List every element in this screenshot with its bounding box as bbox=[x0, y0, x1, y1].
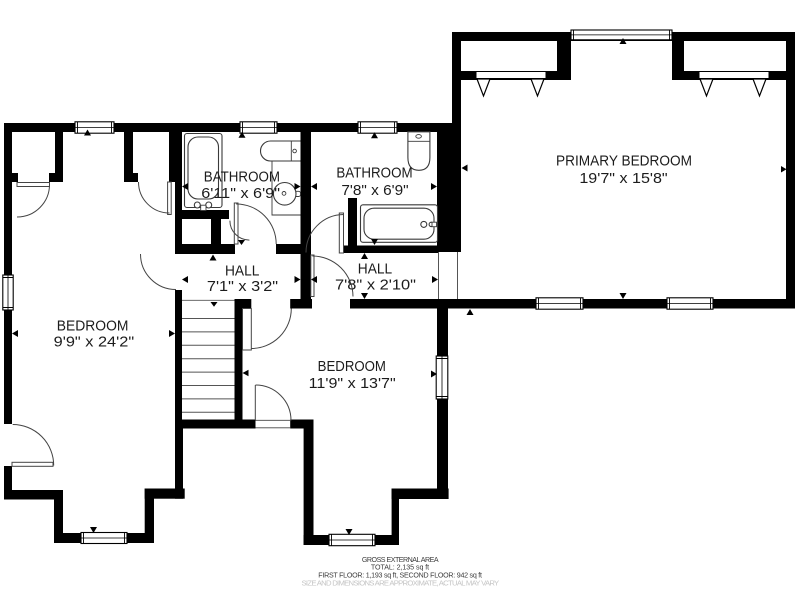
svg-text:BATHROOM: BATHROOM bbox=[336, 165, 412, 181]
svg-text:TOTAL: 2,135 sq ft: TOTAL: 2,135 sq ft bbox=[371, 564, 429, 572]
svg-text:PRIMARY BEDROOM: PRIMARY BEDROOM bbox=[556, 153, 692, 169]
svg-text:7'8" x 2'10": 7'8" x 2'10" bbox=[335, 277, 416, 293]
svg-text:7'1" x 3'2": 7'1" x 3'2" bbox=[207, 279, 278, 295]
svg-text:7'8" x 6'9": 7'8" x 6'9" bbox=[341, 183, 408, 199]
svg-text:HALL: HALL bbox=[225, 264, 259, 280]
svg-text:BATHROOM: BATHROOM bbox=[204, 169, 280, 185]
svg-text:6'11" x 6'9": 6'11" x 6'9" bbox=[201, 186, 280, 202]
svg-text:SIZE AND DIMENSIONS ARE APPROX: SIZE AND DIMENSIONS ARE APPROXIMATE, ACT… bbox=[302, 579, 500, 588]
svg-text:HALL: HALL bbox=[358, 262, 392, 278]
svg-text:BEDROOM: BEDROOM bbox=[318, 359, 386, 375]
svg-text:11'9" x 13'7": 11'9" x 13'7" bbox=[309, 376, 396, 392]
svg-text:9'9" x 24'2": 9'9" x 24'2" bbox=[54, 335, 135, 351]
svg-text:19'7" x 15'8": 19'7" x 15'8" bbox=[579, 171, 667, 187]
svg-text:BEDROOM: BEDROOM bbox=[57, 318, 129, 334]
